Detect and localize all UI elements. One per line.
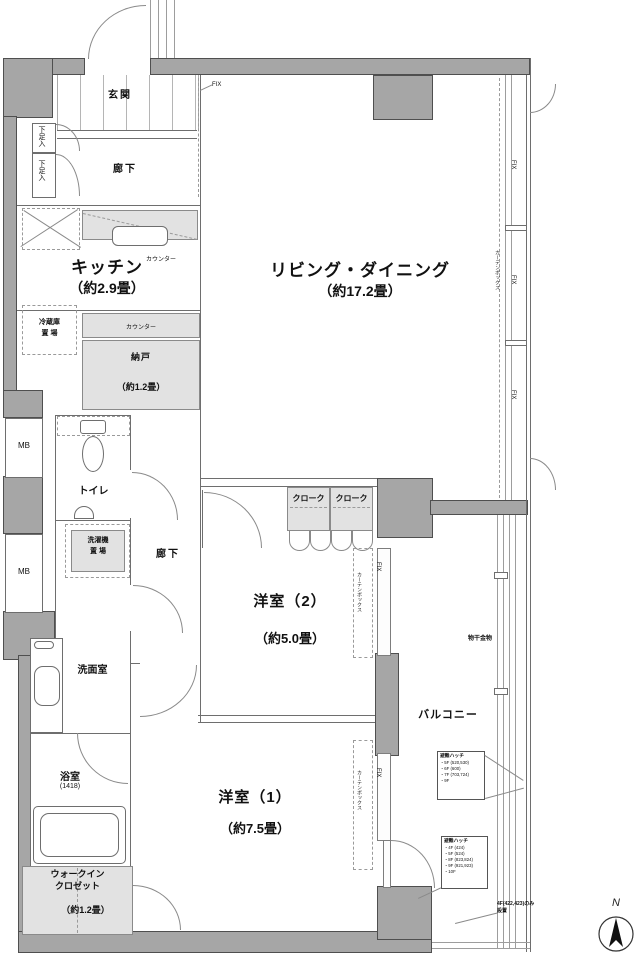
wall-pillar — [373, 75, 433, 120]
partition-line — [200, 75, 201, 480]
bedroom1-label: 洋室（1） — [175, 786, 335, 807]
hatch-note-line: ・6F (600) — [440, 766, 461, 771]
corner-note-line2: 設置 — [497, 908, 507, 914]
wall-segment — [3, 476, 43, 534]
fix-label: FIX — [375, 768, 381, 777]
bathtub — [40, 813, 119, 857]
wic-label-line2: クロゼット — [55, 881, 100, 891]
closet-door-arc — [310, 531, 331, 551]
bedroom2-size: （約5.0畳） — [210, 628, 370, 647]
entrance-door-arc — [88, 5, 146, 59]
railing-joint — [494, 688, 508, 695]
fix-label: FIX — [510, 390, 516, 399]
hanger-pipe — [333, 507, 370, 508]
partition-line — [198, 715, 375, 716]
balcony-railing-line — [515, 515, 516, 948]
partition-line — [198, 722, 375, 723]
toilet-bowl — [82, 436, 104, 472]
hallway-upper-label: 廊下 — [95, 160, 155, 175]
bedroom1-door-arc — [140, 665, 197, 717]
nando-size: （約1.2畳） — [82, 380, 200, 393]
nando-label: 納戸 — [82, 350, 200, 363]
fridge-label-line1: 冷蔵庫 — [39, 319, 60, 326]
window-line — [511, 75, 512, 500]
fix-callout-line — [200, 85, 212, 91]
shoe-door-arc — [56, 154, 80, 196]
wall-segment — [375, 653, 399, 756]
toilet-tank — [80, 420, 106, 434]
fix-label: FIX — [212, 82, 221, 88]
outer-wall-line — [530, 58, 531, 952]
balcony-railing-line — [497, 515, 498, 948]
fix-window — [377, 753, 391, 841]
railing-joint — [494, 572, 508, 579]
fix-label: FIX — [510, 160, 516, 169]
laundry-hook-label: 物干金物 — [468, 633, 492, 642]
living-size: （約17.2畳） — [250, 281, 470, 301]
wall-segment — [430, 500, 528, 515]
bath-label: 浴室 — [40, 768, 100, 783]
partition-line — [55, 520, 131, 521]
partition-line — [17, 205, 200, 206]
washbasin-tray — [34, 641, 54, 649]
window-line — [505, 75, 506, 500]
wic-label-line1: ウォークイン — [50, 869, 104, 879]
note-callout-line — [484, 755, 523, 781]
fix-label: FIX — [375, 562, 381, 571]
corner-note-line1: 4F(422,423)のみ — [497, 901, 534, 907]
partition-line — [200, 480, 201, 722]
window-mullion — [505, 225, 527, 231]
wall-segment — [3, 58, 53, 118]
toilet-label: トイレ — [57, 482, 130, 497]
closet-door-arc — [289, 531, 310, 551]
partition-line — [130, 663, 140, 664]
partition-line — [55, 415, 56, 645]
hanger-pipe — [290, 507, 327, 508]
genkan-step-line — [57, 138, 197, 139]
floor-plan: 玄関 下足入 下足入 廊下 FIX キッチン カウンター （約2.9畳） 冷蔵庫… — [0, 0, 640, 954]
hatch-note-2: 避難ハッチ ・4F (424) ・5F (524) ・8F (823,824) … — [441, 836, 488, 889]
cloak-label: クローク — [330, 493, 373, 504]
balcony-railing-line — [503, 515, 504, 948]
washer-label-line1: 洗濯機 — [88, 537, 109, 544]
balcony-door-arc — [391, 840, 435, 888]
wall-segment — [3, 390, 43, 418]
wall-segment — [150, 58, 530, 75]
hatch-note-line: ・7F (703,724) — [440, 772, 469, 777]
hatch-note-1: 避難ハッチ ・5F (520,530) ・6F (600) ・7F (703,7… — [437, 751, 485, 800]
living-label: リビング・ダイニング — [250, 256, 470, 281]
kitchen-size: （約2.9畳） — [37, 278, 177, 298]
porch-line — [166, 0, 167, 58]
hatch-note-line: ・5F (520,530) — [440, 760, 469, 765]
fix-window-entry — [198, 78, 200, 197]
partition-line — [200, 478, 377, 479]
genkan-label: 玄関 — [70, 86, 170, 101]
compass-needle — [609, 918, 623, 947]
cloak-label: クローク — [287, 493, 330, 504]
note-callout-line — [455, 912, 498, 924]
washer-space-label: 洗濯機 置 場 — [71, 536, 125, 557]
window-mullion — [505, 340, 527, 346]
counter-2-label: カウンター — [82, 322, 200, 331]
curtain-box-label: カーテンボックス — [356, 770, 363, 810]
fix-label: FIX — [510, 275, 516, 284]
north-compass: N — [592, 894, 640, 954]
shoe-cabinet-label: 下足入 — [36, 160, 46, 181]
toilet-door-arc — [132, 472, 178, 520]
door-swing-arc — [530, 84, 556, 113]
door-leaf — [202, 490, 203, 548]
wic-door-arc — [133, 885, 181, 930]
wall-segment — [3, 116, 17, 392]
shoe-cabinet-label: 下足入 — [36, 126, 46, 147]
hatch-note-title: 避難ハッチ — [444, 839, 468, 844]
genkan-step-line — [57, 130, 197, 131]
washroom-door-arc — [133, 585, 183, 633]
note-callout-line — [485, 788, 524, 799]
balcony-label: バルコニー — [408, 706, 488, 722]
hatch-note-title: 避難ハッチ — [440, 754, 464, 759]
balcony-railing-line — [432, 942, 530, 943]
bath-size: (1418) — [40, 783, 100, 790]
counter-label: カウンター — [146, 254, 176, 263]
bedroom2-door-arc — [204, 492, 262, 548]
compass-n-letter: N — [612, 897, 620, 909]
curtain-box-label: カーテンボックス — [494, 250, 501, 290]
wall-pillar — [377, 478, 433, 538]
curtain-box-label: カーテンボックス — [356, 572, 363, 612]
balcony-railing-line — [509, 515, 510, 948]
outer-wall-line — [526, 75, 527, 952]
hatch-note-line: ・8F (823,824) — [444, 857, 473, 862]
hallway-lower-label: 廊下 — [138, 545, 198, 560]
balcony-railing-line — [432, 948, 530, 949]
kitchen-sink — [112, 226, 168, 246]
partition-line — [130, 415, 131, 470]
toilet-hand-basin — [74, 506, 94, 519]
bedroom2-label: 洋室（2） — [210, 590, 370, 611]
corner-note: 4F(422,423)のみ 設置 — [497, 901, 567, 915]
washbasin — [34, 666, 60, 706]
hatch-note-line: ・5F (524) — [444, 851, 465, 856]
washer-label-line2: 置 場 — [90, 548, 106, 555]
bedroom1-size: （約7.5畳） — [175, 818, 335, 837]
porch-line — [158, 0, 159, 58]
hatch-note-line: ・9F (921,923) — [444, 863, 473, 868]
wic-label: ウォークイン クロゼット — [22, 869, 133, 892]
hatch-note-line: ・10F — [444, 869, 456, 874]
partition-line — [130, 518, 131, 585]
hatch-note-line: ・9F — [440, 778, 449, 783]
fridge-label-line2: 置 場 — [42, 330, 58, 337]
porch-line — [150, 0, 151, 58]
meter-box-label: MB — [5, 441, 43, 450]
porch-line — [174, 0, 175, 58]
hatch-note-line: ・4F (424) — [444, 845, 465, 850]
fridge-space-label: 冷蔵庫 置 場 — [24, 318, 75, 339]
closet-door-arc — [331, 531, 352, 551]
door-swing-arc — [530, 458, 556, 490]
washroom-label: 洗面室 — [55, 661, 130, 676]
wic-size: （約1.2畳） — [30, 903, 141, 916]
meter-box-label: MB — [5, 567, 43, 576]
genkan-tile-floor — [57, 75, 199, 130]
balcony-door-leaf — [383, 840, 391, 888]
